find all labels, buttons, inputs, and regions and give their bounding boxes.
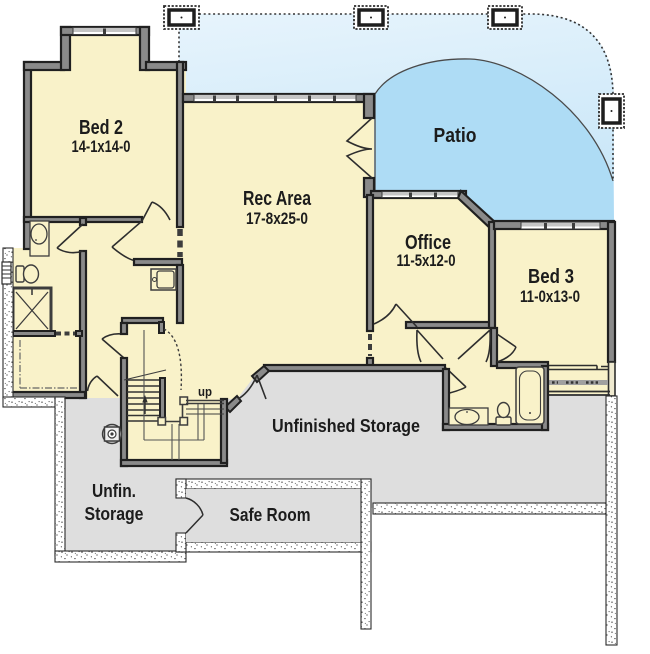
svg-text:11-0x13-0: 11-0x13-0 xyxy=(520,288,580,306)
svg-text:14-1x14-0: 14-1x14-0 xyxy=(72,138,131,156)
svg-text:Patio: Patio xyxy=(434,124,477,147)
svg-text:17-8x25-0: 17-8x25-0 xyxy=(246,210,308,228)
svg-text:Unfinished Storage: Unfinished Storage xyxy=(272,415,420,436)
svg-text:up: up xyxy=(198,385,212,399)
svg-text:Unfin.: Unfin. xyxy=(92,480,136,501)
svg-text:11-5x12-0: 11-5x12-0 xyxy=(397,252,456,270)
svg-text:Bed 3: Bed 3 xyxy=(528,265,574,288)
svg-text:Rec Area: Rec Area xyxy=(243,187,311,210)
svg-text:Bed 2: Bed 2 xyxy=(79,116,123,139)
svg-text:Office: Office xyxy=(405,231,451,254)
svg-text:Safe Room: Safe Room xyxy=(230,504,311,525)
svg-text:Storage: Storage xyxy=(85,503,144,524)
